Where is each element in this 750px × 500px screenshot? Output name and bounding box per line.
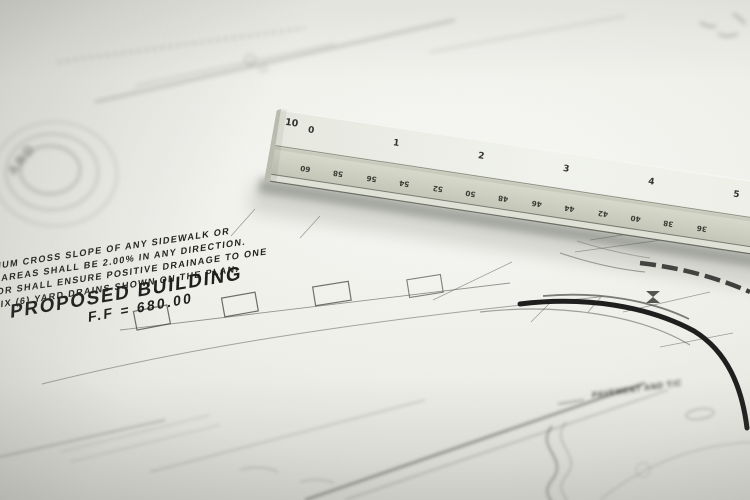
film-grain <box>0 0 750 500</box>
blueprint-art: ARD XIMUM CROSS SLOPE OF ANY SIDEWALK OR… <box>0 0 750 500</box>
blueprint-photo: ARD XIMUM CROSS SLOPE OF ANY SIDEWALK OR… <box>0 0 750 500</box>
